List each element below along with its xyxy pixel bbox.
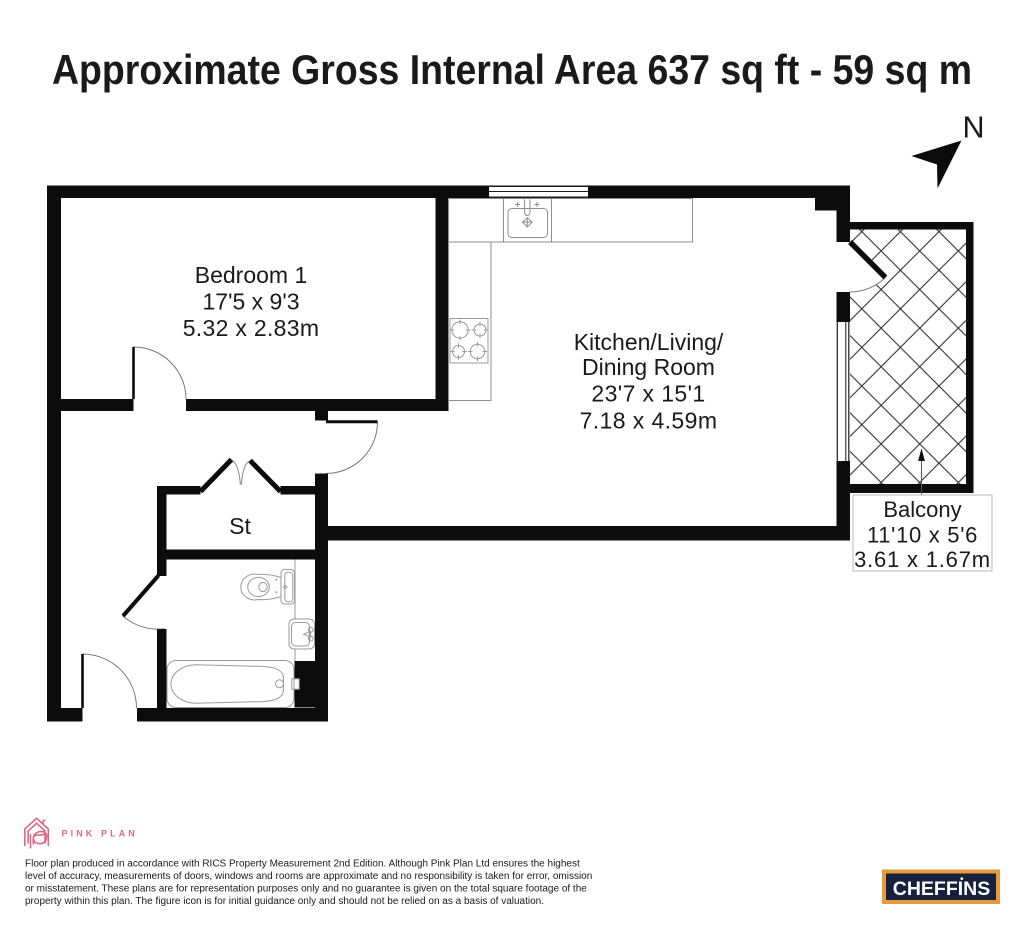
svg-text:7.18 x 4.59m: 7.18 x 4.59m bbox=[580, 408, 718, 434]
svg-text:Balcony: Balcony bbox=[883, 497, 961, 522]
svg-text:N: N bbox=[962, 111, 984, 145]
svg-text:11'10 x 5'6: 11'10 x 5'6 bbox=[867, 523, 978, 548]
svg-text:5.32 x 2.83m: 5.32 x 2.83m bbox=[183, 315, 320, 341]
svg-text:level of accuracy, measurement: level of accuracy, measurements of doors… bbox=[25, 871, 592, 882]
svg-text:Bedroom 1: Bedroom 1 bbox=[195, 262, 308, 288]
svg-text:Dining Room: Dining Room bbox=[582, 354, 715, 380]
svg-text:St: St bbox=[229, 513, 251, 539]
svg-text:23'7 x 15'1: 23'7 x 15'1 bbox=[591, 381, 705, 407]
svg-text:property within this plan. The: property within this plan. The figure ic… bbox=[25, 896, 544, 907]
svg-text:3.61 x 1.67m: 3.61 x 1.67m bbox=[854, 547, 991, 572]
svg-text:CHEFFINS: CHEFFINS bbox=[893, 878, 991, 900]
svg-text:17'5 x 9'3: 17'5 x 9'3 bbox=[202, 289, 299, 315]
svg-text:Floor plan produced in accorda: Floor plan produced in accordance with R… bbox=[25, 859, 580, 870]
svg-text:Kitchen/Living/: Kitchen/Living/ bbox=[574, 329, 724, 355]
svg-text:or misstatement. These plans a: or misstatement. These plans are for rep… bbox=[25, 884, 587, 895]
svg-text:PINK PLAN: PINK PLAN bbox=[62, 829, 138, 839]
svg-text:Approximate Gross Internal Are: Approximate Gross Internal Area 637 sq f… bbox=[52, 46, 972, 93]
